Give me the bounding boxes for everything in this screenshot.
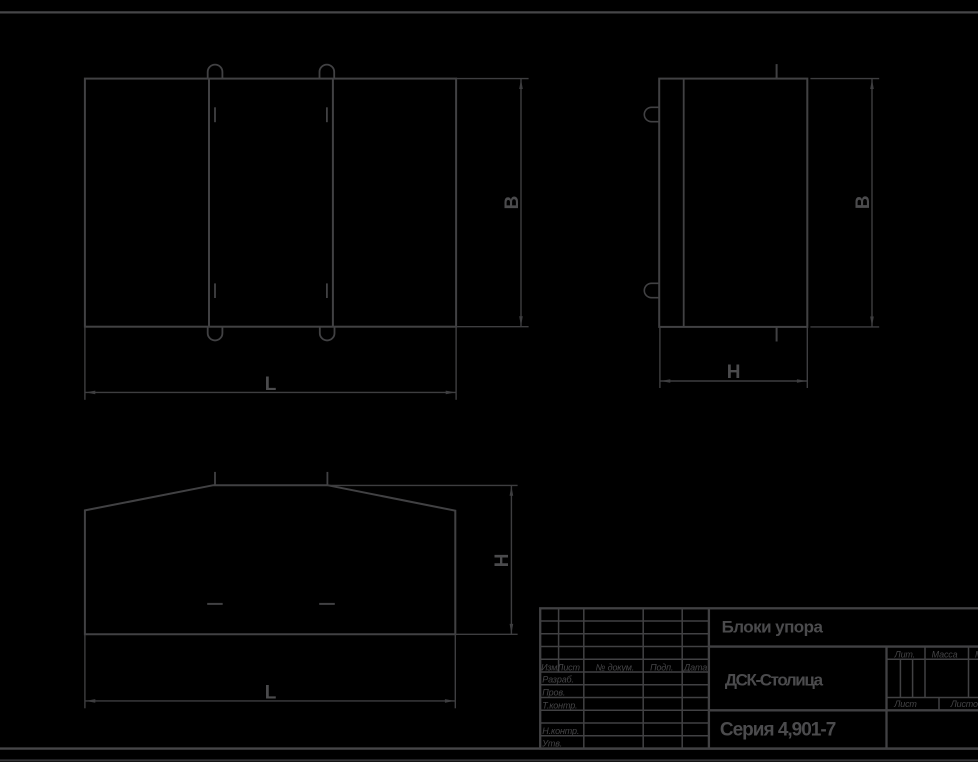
svg-text:Блоки упора: Блоки упора <box>722 617 824 636</box>
svg-text:Т.контр.: Т.контр. <box>542 701 577 711</box>
svg-text:№ докум.: № докум. <box>596 662 634 672</box>
svg-text:Лист: Лист <box>556 662 580 672</box>
svg-text:Изм: Изм <box>541 662 557 672</box>
svg-text:Пров.: Пров. <box>542 687 565 697</box>
svg-text:Разраб.: Разраб. <box>542 675 574 685</box>
svg-text:L: L <box>265 374 277 395</box>
svg-text:ДСК-Столица: ДСК-Столица <box>725 671 824 690</box>
svg-text:H: H <box>492 554 513 568</box>
svg-text:Н.контр.: Н.контр. <box>542 726 579 736</box>
svg-text:Серия 4,901-7: Серия 4,901-7 <box>720 719 836 740</box>
svg-text:Лист: Лист <box>893 699 917 709</box>
svg-text:Масса: Масса <box>932 650 958 660</box>
svg-text:Лит.: Лит. <box>894 650 915 660</box>
svg-text:Дата: Дата <box>683 662 707 672</box>
svg-text:Листов: Листов <box>950 699 978 709</box>
svg-text:Утв.: Утв. <box>541 738 562 748</box>
svg-text:H: H <box>727 362 741 383</box>
svg-text:B: B <box>502 196 523 210</box>
svg-text:Подп.: Подп. <box>650 662 673 672</box>
svg-text:B: B <box>853 195 874 209</box>
svg-text:L: L <box>265 683 277 704</box>
